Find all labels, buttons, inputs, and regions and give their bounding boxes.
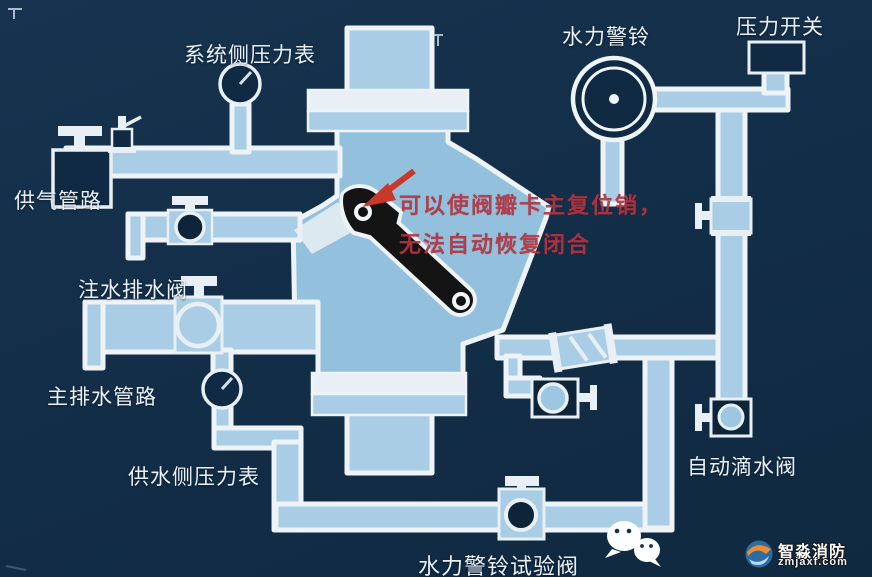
- alarm-drain-valve: [532, 379, 597, 417]
- watermark: 智淼消防 zmjaxf.com: [744, 537, 870, 575]
- fill-drain-elbow: [128, 214, 143, 258]
- automatic-drip-valve: [695, 399, 751, 436]
- alarm-vertical-pipe: [718, 92, 745, 412]
- watermark-domain: zmjaxf.com: [778, 556, 848, 568]
- fill-drain-pipe: [128, 214, 300, 240]
- annotation-line2: 无法自动恢复闭合: [399, 227, 591, 259]
- annotation-line1: 可以使阀瓣卡主复位销，: [399, 188, 663, 220]
- top-flange-upper: [308, 90, 468, 111]
- main-drain-stub: [85, 302, 103, 368]
- label-drip-valve: 自动滴水阀: [687, 451, 797, 481]
- label-pressure-switch: 压力开关: [736, 11, 824, 41]
- fill-drain-valve: [168, 196, 212, 244]
- supply-pressure-gauge: [203, 370, 241, 408]
- label-water-alarm: 水力警铃: [562, 21, 650, 51]
- water-motor-alarm-bell: [573, 58, 655, 140]
- label-main-drain: 主排水管路: [47, 381, 157, 411]
- label-fill-drain: 注水排水阀: [78, 274, 188, 304]
- watermark-logo-icon: [744, 539, 774, 569]
- alarm-check-valve: [548, 323, 617, 373]
- alarm-line-shutoff-valve: [695, 196, 751, 236]
- alarm-test-valve: [499, 476, 544, 539]
- diagram-canvas: 系统侧压力表 水力警铃 压力开关 供气管路 注水排水阀 主排水管路 供水侧压力表…: [0, 0, 872, 577]
- system-pressure-gauge: [220, 64, 260, 104]
- system-gauge-stem: [232, 104, 249, 152]
- reset-pin: [356, 205, 370, 219]
- bottom-flange-upper: [312, 373, 466, 394]
- bottom-flange-lower: [312, 394, 466, 415]
- hinge-pin: [454, 294, 468, 308]
- air-valve-handle: [58, 126, 102, 136]
- label-system-gauge: 系统侧压力表: [184, 39, 316, 69]
- alarm-line-pipe: [497, 337, 745, 358]
- label-air-supply: 供气管路: [14, 185, 102, 215]
- top-flange-lower: [308, 111, 468, 131]
- pressure-switch-box: [749, 42, 804, 73]
- drain-riser-pipe: [645, 342, 672, 528]
- label-supply-gauge: 供水侧压力表: [128, 461, 260, 491]
- label-test-valve: 水力警铃试验阀: [418, 549, 579, 577]
